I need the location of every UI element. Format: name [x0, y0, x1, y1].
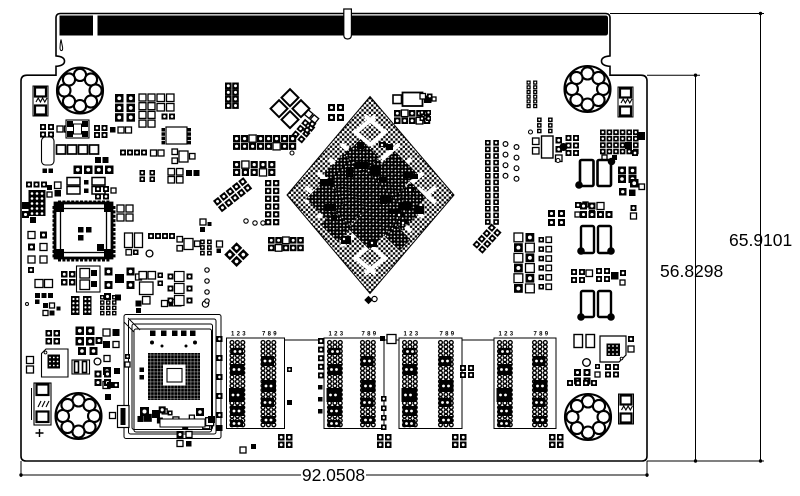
svg-text:56.8298: 56.8298	[660, 261, 723, 281]
svg-text:65.9101: 65.9101	[729, 230, 792, 250]
svg-text:92.0508: 92.0508	[302, 465, 365, 485]
